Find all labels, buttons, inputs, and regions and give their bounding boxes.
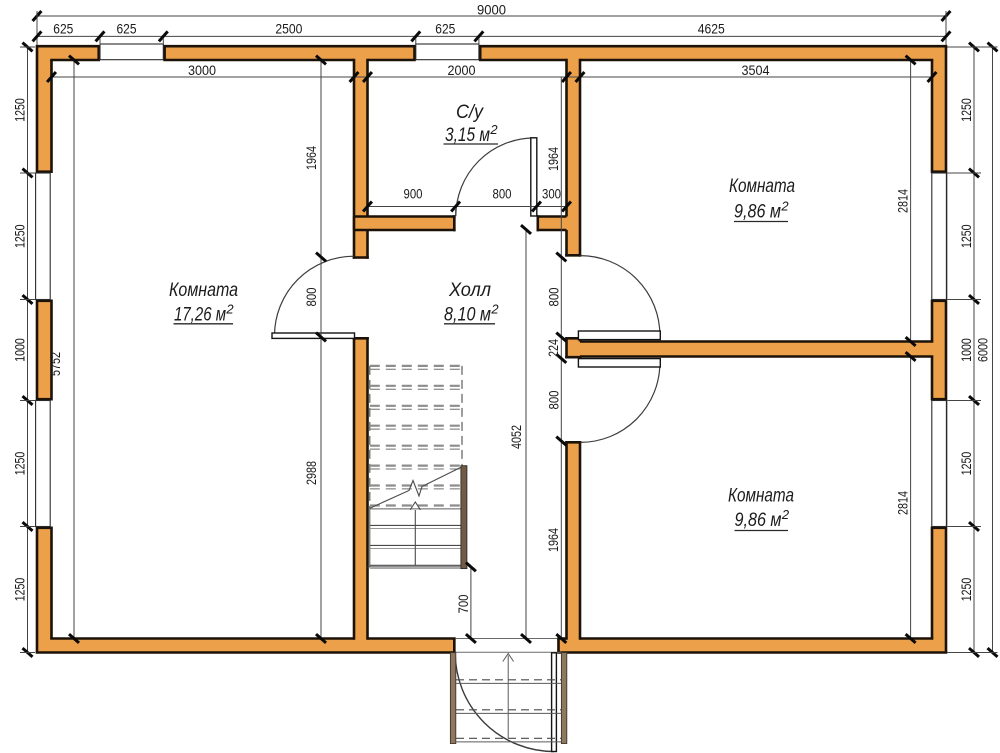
- svg-text:1964: 1964: [304, 146, 320, 170]
- svg-text:С/у: С/у: [456, 101, 484, 123]
- svg-text:800: 800: [547, 390, 563, 409]
- svg-text:9000: 9000: [477, 3, 506, 19]
- svg-text:Комната: Комната: [169, 279, 238, 301]
- svg-text:1250: 1250: [959, 452, 975, 476]
- svg-text:Комната: Комната: [728, 485, 794, 507]
- svg-text:800: 800: [547, 287, 563, 306]
- svg-text:625: 625: [117, 22, 137, 38]
- svg-text:9,86 м: 9,86 м: [735, 510, 782, 531]
- svg-text:1250: 1250: [13, 224, 29, 248]
- svg-text:1250: 1250: [13, 578, 29, 602]
- svg-text:1000: 1000: [959, 338, 975, 362]
- svg-text:2: 2: [225, 301, 234, 316]
- svg-text:700: 700: [456, 594, 472, 613]
- svg-text:2814: 2814: [896, 491, 912, 515]
- svg-text:2814: 2814: [896, 189, 912, 213]
- svg-text:800: 800: [304, 287, 320, 306]
- svg-text:5752: 5752: [48, 352, 64, 376]
- svg-text:1250: 1250: [13, 452, 29, 476]
- svg-text:9,86 м: 9,86 м: [734, 202, 781, 223]
- svg-text:1250: 1250: [13, 98, 29, 122]
- svg-text:2500: 2500: [275, 22, 302, 38]
- svg-text:1250: 1250: [959, 98, 975, 122]
- svg-text:6000: 6000: [976, 338, 992, 362]
- svg-text:3504: 3504: [742, 63, 770, 79]
- svg-text:3000: 3000: [188, 63, 216, 79]
- svg-text:3,15 м: 3,15 м: [445, 125, 490, 146]
- svg-text:2: 2: [781, 507, 790, 522]
- svg-text:625: 625: [435, 22, 455, 38]
- svg-text:1000: 1000: [13, 338, 29, 362]
- svg-text:2: 2: [490, 301, 499, 316]
- svg-text:2988: 2988: [304, 461, 320, 485]
- svg-text:2000: 2000: [448, 63, 476, 79]
- svg-text:800: 800: [493, 187, 512, 203]
- svg-text:2: 2: [780, 199, 789, 214]
- svg-text:1250: 1250: [959, 578, 975, 602]
- svg-text:625: 625: [53, 22, 73, 38]
- svg-text:4625: 4625: [698, 22, 725, 38]
- svg-text:1250: 1250: [959, 224, 975, 248]
- svg-text:Холл: Холл: [448, 279, 491, 301]
- svg-text:Комната: Комната: [729, 175, 795, 197]
- svg-text:4052: 4052: [509, 425, 525, 449]
- svg-text:1964: 1964: [546, 147, 562, 171]
- svg-text:2: 2: [489, 122, 498, 137]
- svg-text:224: 224: [546, 339, 562, 357]
- svg-text:17,26 м: 17,26 м: [174, 304, 226, 325]
- svg-text:300: 300: [542, 187, 561, 203]
- svg-text:900: 900: [404, 187, 423, 203]
- svg-text:1964: 1964: [546, 528, 562, 552]
- svg-text:8,10 м: 8,10 м: [444, 304, 491, 325]
